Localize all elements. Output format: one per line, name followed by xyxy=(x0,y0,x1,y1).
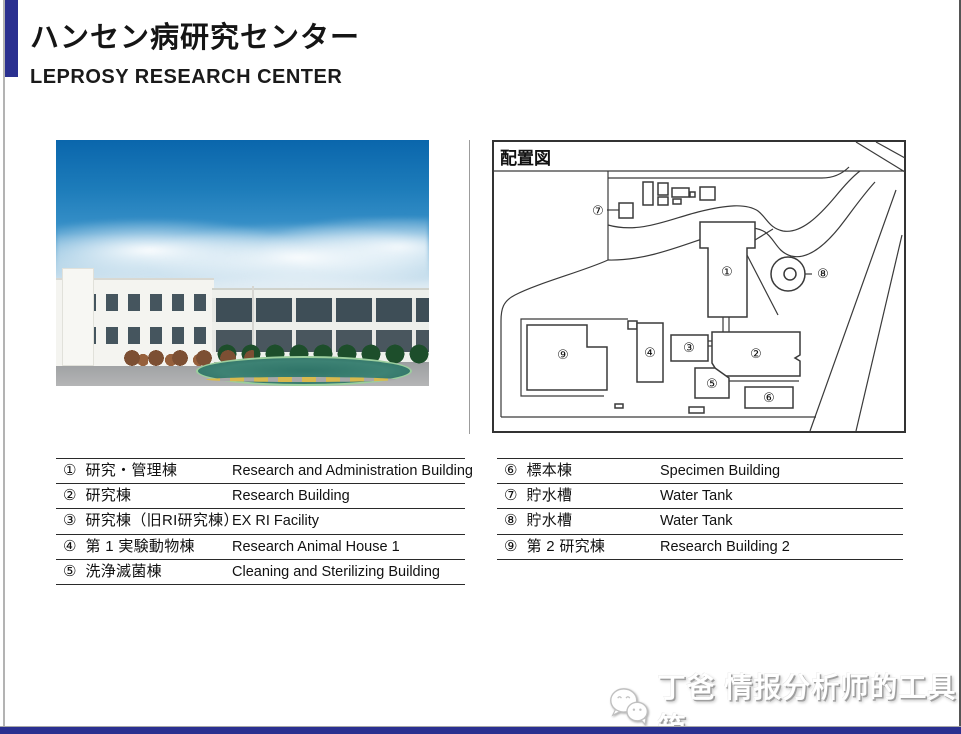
legend-number: ③ xyxy=(63,509,76,533)
document-page: ハンセン病研究センター LEPROSY RESEARCH CENTER xyxy=(0,0,961,734)
legend-name-en: Research and Administration Building xyxy=(232,459,473,483)
map-mark-2: ② xyxy=(750,346,762,361)
map-mark-4: ④ xyxy=(644,345,656,360)
legend-name-en: Research Building xyxy=(232,484,350,508)
legend-name-en: Water Tank xyxy=(660,509,733,533)
legend-row: ⑥標本棟Specimen Building xyxy=(497,458,903,483)
map-mark-8: ⑧ xyxy=(817,266,829,281)
blue-accent-bar xyxy=(5,0,18,77)
page-title-japanese: ハンセン病研究センター xyxy=(30,14,360,56)
legend-number: ⑧ xyxy=(504,509,517,533)
legend-name-ja: 洗浄滅菌棟 xyxy=(85,560,162,584)
watermark: 丁爸 情报分析师的工具箱 xyxy=(608,666,961,734)
legend-row: ⑤洗浄滅菌棟Cleaning and Sterilizing Building xyxy=(56,559,465,585)
legend-name-ja: 貯水槽 xyxy=(526,484,572,508)
page-title-english: LEPROSY RESEARCH CENTER xyxy=(30,66,342,89)
map-mark-3: ③ xyxy=(683,340,695,355)
map-mark-7: ⑦ xyxy=(592,203,604,218)
legend-name-en: Water Tank xyxy=(660,484,733,508)
blue-footer-bar xyxy=(0,727,961,734)
wechat-bubbles-icon xyxy=(608,685,651,727)
legend-name-ja: 研究棟（旧RI研究棟） xyxy=(85,509,238,533)
legend-row: ⑨第 2 研究棟Research Building 2 xyxy=(497,534,903,560)
campus-photo xyxy=(56,140,429,386)
map-building-7 xyxy=(619,203,633,218)
legend-number: ② xyxy=(63,484,76,508)
legend-name-en: Specimen Building xyxy=(660,459,780,483)
legend-row: ②研究棟Research Building xyxy=(56,483,465,508)
legend-number: ④ xyxy=(63,535,76,559)
legend-name-ja: 貯水槽 xyxy=(526,509,572,533)
map-mark-6: ⑥ xyxy=(763,390,775,405)
legend-name-en: Cleaning and Sterilizing Building xyxy=(232,560,440,584)
legend-name-en: EX RI Facility xyxy=(232,509,319,533)
legend-name-ja: 第 2 研究棟 xyxy=(526,535,605,559)
legend-number: ① xyxy=(63,459,76,483)
page-left-border xyxy=(3,0,5,726)
legend-name-ja: 第 1 実験動物棟 xyxy=(85,535,194,559)
map-mark-1: ① xyxy=(721,264,733,279)
legend-row: ⑧貯水槽Water Tank xyxy=(497,508,903,533)
legend-row: ①研究・管理棟Research and Administration Build… xyxy=(56,458,465,483)
legend-name-ja: 研究棟 xyxy=(85,484,131,508)
legend-table-right: ⑥標本棟Specimen Building ⑦貯水槽Water Tank ⑧貯水… xyxy=(497,458,903,560)
map-title: 配置図 xyxy=(500,149,551,168)
legend-number: ⑥ xyxy=(504,459,517,483)
legend-number: ⑤ xyxy=(63,560,76,584)
photo-left-tower xyxy=(62,268,94,366)
legend-row: ③研究棟（旧RI研究棟）EX RI Facility xyxy=(56,508,465,533)
photo-window-band xyxy=(212,298,429,322)
site-map: 配置図 ① ② ③ ④ ⑤ ⑥ ⑦ ⑧ ⑨ xyxy=(492,140,906,433)
legend-number: ⑨ xyxy=(504,535,517,559)
legend-row: ⑦貯水槽Water Tank xyxy=(497,483,903,508)
map-mark-9: ⑨ xyxy=(557,347,569,362)
map-mark-5: ⑤ xyxy=(706,376,718,391)
legend-table-left: ①研究・管理棟Research and Administration Build… xyxy=(56,458,465,585)
legend-row: ④第 1 実験動物棟Research Animal House 1 xyxy=(56,534,465,559)
scan-fold-line xyxy=(469,140,470,434)
legend-name-en: Research Building 2 xyxy=(660,535,790,559)
legend-name-en: Research Animal House 1 xyxy=(232,535,400,559)
legend-name-ja: 標本棟 xyxy=(526,459,572,483)
watermark-text: 丁爸 情报分析师的工具箱 xyxy=(658,666,961,734)
photo-curb xyxy=(206,377,396,382)
legend-number: ⑦ xyxy=(504,484,517,508)
legend-name-ja: 研究・管理棟 xyxy=(85,459,177,483)
